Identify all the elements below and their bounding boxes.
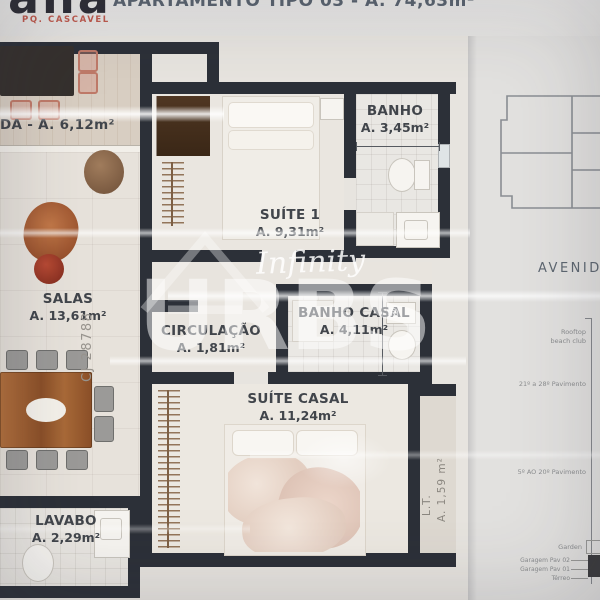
plant xyxy=(34,254,64,284)
chair xyxy=(94,386,114,412)
upper-floors-label: 21º a 28º Pavimento xyxy=(504,380,586,389)
chair xyxy=(78,72,98,94)
wall-segment xyxy=(438,94,450,144)
garden-label: Garden xyxy=(548,543,582,552)
room-label-suite-casal: SUÍTE CASAL A. 11,24m² xyxy=(220,390,376,425)
room-name: SALAS xyxy=(10,290,126,308)
bed-pillow xyxy=(228,130,314,150)
wall-segment xyxy=(408,384,420,553)
plant xyxy=(84,150,124,194)
ground-label: Térreo xyxy=(516,575,570,583)
chair xyxy=(6,350,28,370)
chair xyxy=(66,450,88,470)
glass-glare-blob xyxy=(296,432,392,488)
room-name: BANHO xyxy=(352,102,438,120)
glass-glare xyxy=(0,228,470,238)
wall-segment xyxy=(408,384,456,396)
wall-segment xyxy=(268,372,432,384)
wall-segment xyxy=(0,586,140,598)
wall-segment xyxy=(0,496,140,508)
varanda-dining-table xyxy=(0,46,74,96)
wall-segment xyxy=(152,372,234,384)
room-label-banho: BANHO A. 3,45m² xyxy=(352,102,438,137)
key-plan-outline xyxy=(486,88,600,216)
watermark-license-number: CJ 28788 xyxy=(80,262,96,382)
tower-base-block xyxy=(588,555,600,577)
room-label-lt-name: L.T. xyxy=(421,458,434,516)
chair xyxy=(36,450,58,470)
glass-glare xyxy=(168,290,600,302)
chair xyxy=(36,350,58,370)
toilet-tank xyxy=(414,160,430,190)
bed-pillow xyxy=(228,102,314,128)
mid-floors-label: 5º AO 20º Pavimento xyxy=(502,468,586,477)
closet-rail xyxy=(162,162,184,226)
leader-line xyxy=(571,560,588,561)
street-label: AVENIDA F xyxy=(538,261,600,276)
glass-glare xyxy=(0,524,250,534)
glass-glare xyxy=(110,356,466,366)
chair xyxy=(78,50,98,72)
nightstand xyxy=(320,98,344,120)
board-header: ana PQ. CASCAVEL APARTAMENTO TIPO 03 - A… xyxy=(0,0,600,36)
toilet xyxy=(22,544,54,582)
brand-logo-subtitle: PQ. CASCAVEL xyxy=(22,15,110,25)
sheet-fold-shadow xyxy=(468,36,477,600)
chair xyxy=(6,450,28,470)
wardrobe xyxy=(156,96,210,156)
room-name: SUÍTE 1 xyxy=(230,206,350,224)
leader-line xyxy=(571,569,588,570)
glass-glare xyxy=(0,106,224,122)
wall-segment xyxy=(140,82,456,94)
room-area: A. 3,45m² xyxy=(352,120,438,137)
table-platter xyxy=(26,398,66,422)
registered-mark: ® xyxy=(386,306,400,322)
garden-box xyxy=(586,540,600,554)
room-area: A. 11,24m² xyxy=(220,408,376,425)
room-name: SUÍTE CASAL xyxy=(220,390,376,408)
room-label-lt-area: A. 1,59 m² xyxy=(436,410,450,522)
dimension-line xyxy=(356,142,440,152)
rooftop-label: Rooftop beach club xyxy=(540,328,586,346)
room-label-salas: SALAS A. 13,61m² xyxy=(10,290,126,325)
tower-section-tick xyxy=(585,318,592,319)
garage2-label: Garagem Pav 02 xyxy=(500,557,570,565)
chair xyxy=(94,416,114,442)
room-area: A. 13,61m² xyxy=(10,308,126,325)
floor-plan-board-photo: DA - A. 6,12m² SUÍTE 1 A. 9,31m² BANHO A… xyxy=(0,0,600,600)
garage1-label: Garagem Pav 01 xyxy=(500,566,570,574)
page-title: APARTAMENTO TIPO 03 - A. 74,63m² xyxy=(113,0,475,11)
watermark-urbs-text: URBS xyxy=(138,268,448,364)
toilet xyxy=(388,158,416,192)
leader-line xyxy=(571,578,588,579)
